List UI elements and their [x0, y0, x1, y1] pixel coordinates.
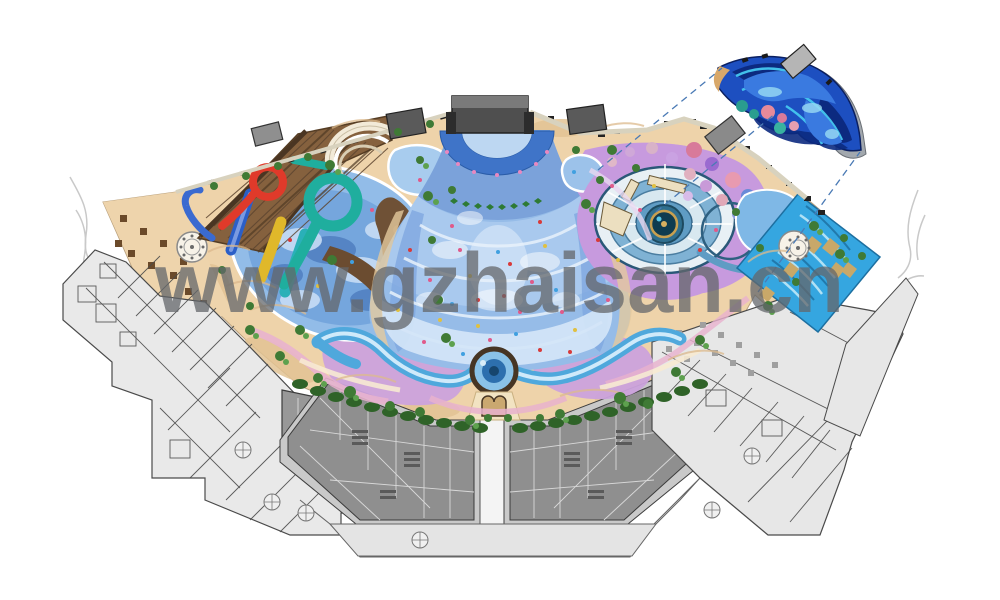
svg-text:www.gzhaisan.cn: www.gzhaisan.cn — [154, 236, 844, 330]
